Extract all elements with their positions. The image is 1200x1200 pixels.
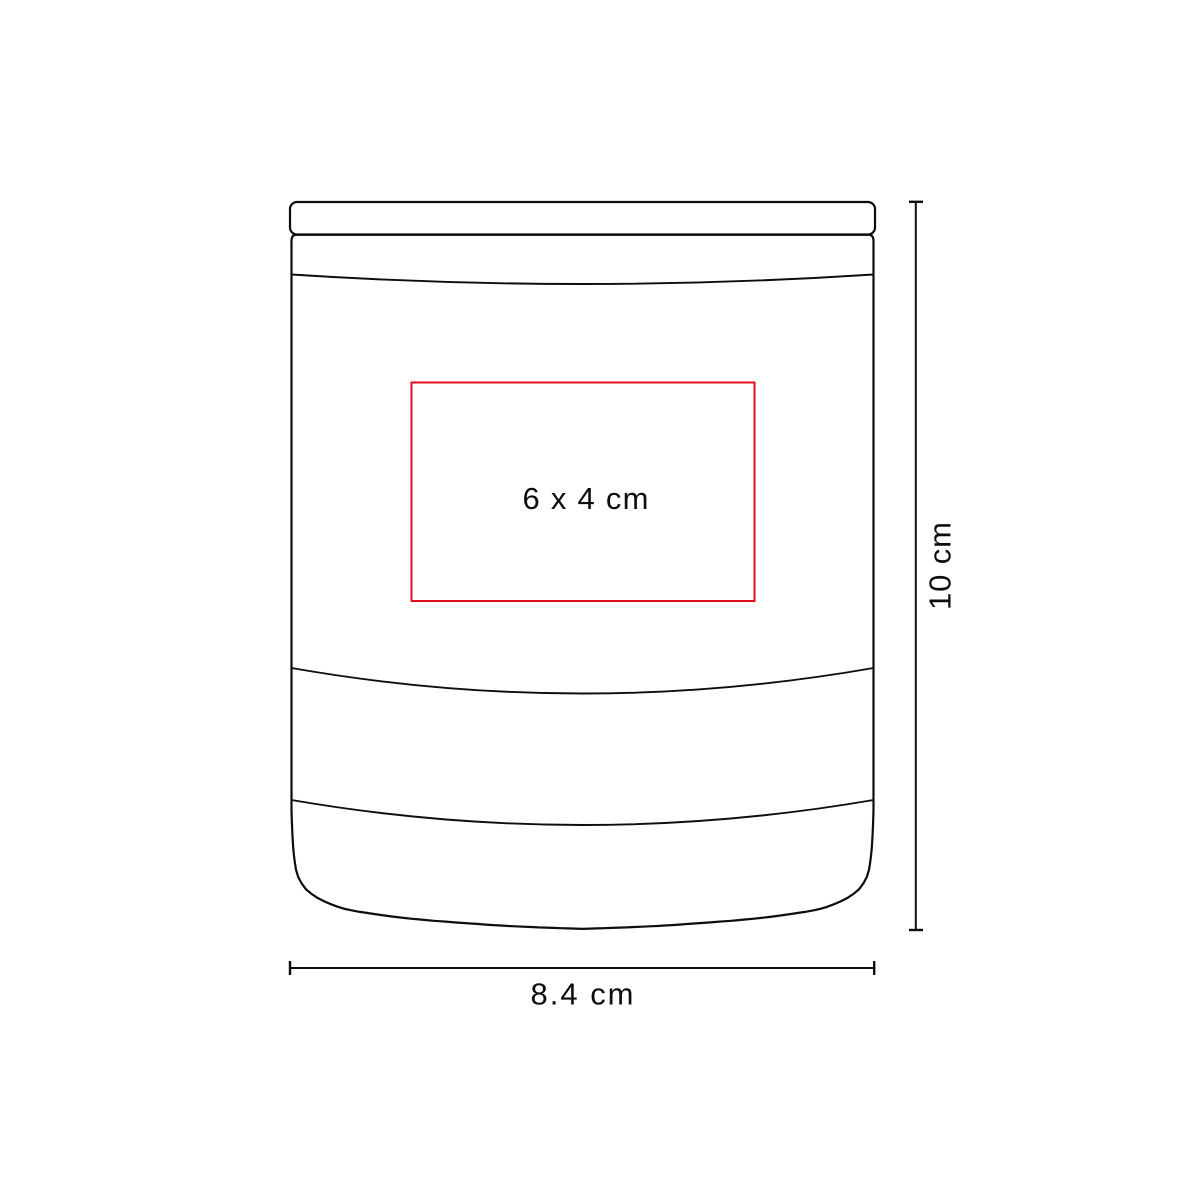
svg-text:10 cm: 10 cm bbox=[923, 522, 958, 610]
svg-text:8.4 cm: 8.4 cm bbox=[531, 977, 634, 1012]
svg-text:6 x 4 cm: 6 x 4 cm bbox=[523, 481, 649, 516]
